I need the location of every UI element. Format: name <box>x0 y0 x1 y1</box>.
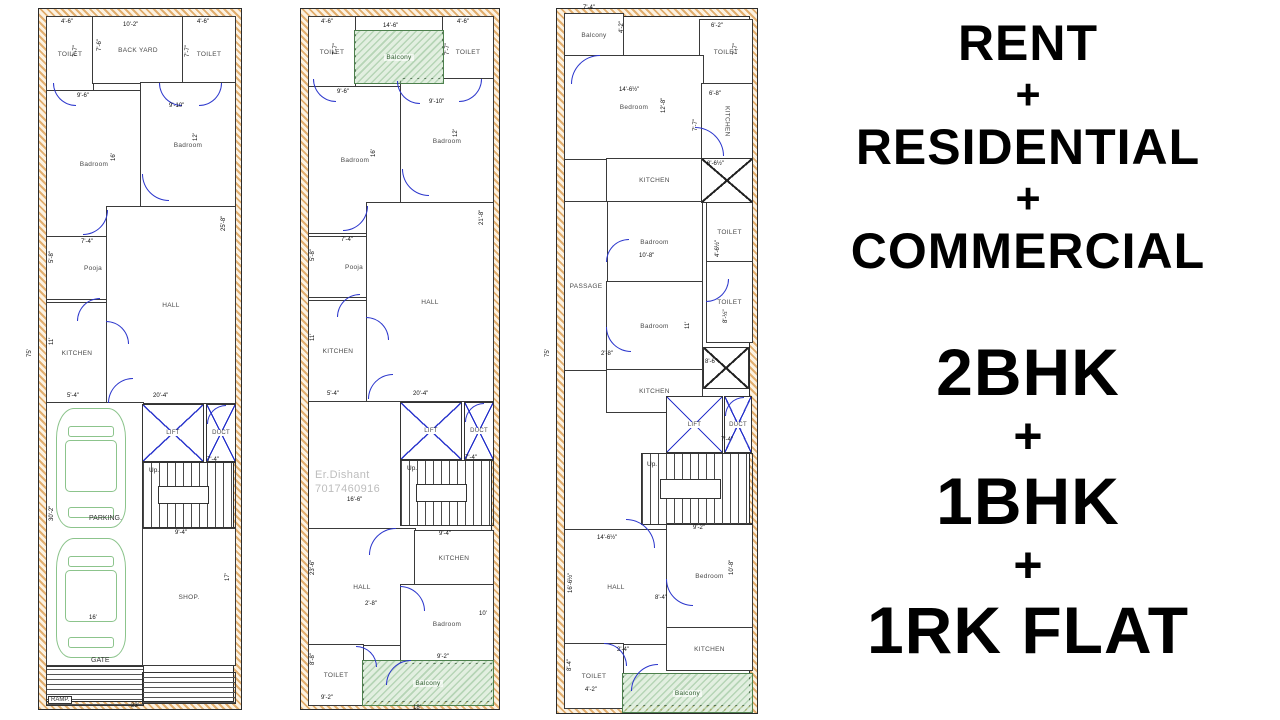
dimension-label: 16'-6" <box>347 497 362 503</box>
room-label: Badroom <box>640 323 668 330</box>
room-label: BACK YARD <box>118 47 158 54</box>
dimension-label: 4'-6½" <box>715 240 721 257</box>
dimension-label: 30'-2" <box>49 506 55 521</box>
plan-ground-floor: TOILETBACK YARDTOILETBadroomBadroomPooja… <box>38 8 242 710</box>
room-toilet: TOILET <box>706 201 753 263</box>
dimension-label: 8'-6" <box>705 359 717 365</box>
room-kitchen: KITCHEN <box>666 627 753 671</box>
room-label: TOILET <box>197 51 221 58</box>
dimension-label: 6'-2" <box>711 23 723 29</box>
dimension-label: 14'-6½" <box>619 87 639 93</box>
plan-text: Up. <box>647 461 657 468</box>
dimension-label: 11' <box>310 334 316 341</box>
room-label: Bedroom <box>695 573 723 580</box>
room-label: Badroom <box>174 142 202 149</box>
dimension-label: 8'-8" <box>310 653 316 665</box>
dimension-label: 7'-7" <box>445 43 451 55</box>
dimension-label: 20'-4" <box>153 393 168 399</box>
room-label: Badroom <box>640 239 668 246</box>
parked-car <box>56 538 126 658</box>
plan-text: PARKING. <box>89 515 122 522</box>
room-label: HALL <box>353 584 370 591</box>
plus-sign: + <box>778 537 1278 594</box>
ramp-label: RAMP. <box>48 696 72 704</box>
dimension-label: 16' <box>89 615 97 621</box>
room-label: DUCT <box>728 422 748 428</box>
dimension-label: 9'-2" <box>321 695 333 701</box>
dimension-label: 7'-7" <box>693 119 699 131</box>
balcony: Balcony <box>354 30 444 84</box>
room-shop-: SHOP. <box>142 528 236 666</box>
room-label: KITCHEN <box>323 348 354 355</box>
parked-car <box>56 408 126 528</box>
room-label: HALL <box>607 584 624 591</box>
room-label: Badroom <box>341 157 369 164</box>
room-label: KITCHEN <box>639 177 670 184</box>
dimension-label: 9'-10" <box>429 99 444 105</box>
dimension-label: 7'-4" <box>465 455 477 461</box>
headline-bottom: 2BHK+1BHK+1RK FLAT <box>778 336 1278 666</box>
dimension-label: 7'-7" <box>73 45 79 57</box>
headline-word: RENT <box>778 16 1278 71</box>
dimension-label: 14'-6" <box>383 23 398 29</box>
room-label: Pooja <box>84 265 102 272</box>
dimension-label: 9'-6" <box>77 93 89 99</box>
lift-box: LIFT <box>666 396 723 453</box>
headline-word: 2BHK <box>778 336 1278 408</box>
ramp: RAMP. <box>46 666 144 706</box>
dimension-label: 12' <box>453 129 459 137</box>
room-label: HALL <box>162 302 179 309</box>
dimension-label: 14'-6½" <box>597 535 617 541</box>
room-label: KITCHEN <box>694 646 725 653</box>
dimension-label: 4'-6" <box>197 19 209 25</box>
entry-steps <box>142 672 236 704</box>
dimension-label: 9'-6" <box>337 89 349 95</box>
dimension-label: 8'-6½" <box>707 161 724 167</box>
room-label: SHOP. <box>179 594 200 601</box>
dimension-label: 7'-4" <box>81 239 93 245</box>
dimension-label: 21'-8" <box>479 210 485 225</box>
dimension-label: 10'-8" <box>639 253 654 259</box>
dimension-label: 4'-6" <box>321 19 333 25</box>
room-toilet: TOILET <box>699 19 753 85</box>
room-label: KITCHEN <box>62 350 93 357</box>
room-label: Badroom <box>433 138 461 145</box>
plan-first-floor: TOILETTOILETBadroomBadroomPoojaKITCHENHA… <box>300 8 500 710</box>
room-label: Bedroom <box>620 104 648 111</box>
room-label: TOILET <box>582 673 606 680</box>
dimension-label: 5'-4" <box>67 393 79 399</box>
staircase <box>641 453 753 525</box>
dimension-label: 9'-4" <box>439 531 451 537</box>
plan-text: Up. <box>149 467 159 474</box>
room-bedroom: Bedroom <box>666 523 753 629</box>
room-label: PASSAGE <box>570 283 603 290</box>
dimension-label: 18' <box>413 705 421 711</box>
room-toilet: TOILET <box>308 16 356 88</box>
dimension-label: 7'-4" <box>207 457 219 463</box>
plan-second-floor: BalconyTOILETBedroomKITCHENKITCHENBadroo… <box>556 8 758 714</box>
balcony: Balcony <box>362 660 494 706</box>
room-label: TOILET <box>456 49 480 56</box>
room-label: KITCHEN <box>724 106 731 137</box>
room-label: KITCHEN <box>639 388 670 395</box>
room-hall: HALL <box>106 206 236 404</box>
headline-word: COMMERCIAL <box>778 224 1278 279</box>
dimension-label: 6'-8" <box>709 91 721 97</box>
dimension-label: 9'-2" <box>437 654 449 660</box>
shaft-box <box>703 347 749 389</box>
dimension-label: 75' <box>545 349 551 357</box>
room-label: Balcony <box>413 680 442 687</box>
plus-sign: + <box>778 71 1278 120</box>
headline-word: RESIDENTIAL <box>778 120 1278 175</box>
dimension-label: 10' <box>479 611 487 617</box>
room-label: Badroom <box>80 161 108 168</box>
headline-word: 1BHK <box>778 465 1278 537</box>
dimension-label: 4'-2" <box>585 687 597 693</box>
room-toilet: TOILET <box>46 16 94 92</box>
dimension-label: 2'-8" <box>365 601 377 607</box>
room-toilet: TOILET <box>706 261 753 343</box>
dimension-label: 75' <box>27 349 33 357</box>
dimension-label: 2'-8" <box>601 351 613 357</box>
room-label: KITCHEN <box>439 555 470 562</box>
lift-box: LIFT <box>142 404 204 462</box>
dimension-label: 16' <box>111 153 117 161</box>
room-label: DUCT <box>211 430 231 436</box>
room-label: TOILET <box>717 299 741 306</box>
dimension-label: 8'-½" <box>723 309 729 323</box>
room-label: LIFT <box>423 428 439 434</box>
dimension-label: 25'-8" <box>221 216 227 231</box>
dimension-label: 8'-4" <box>567 659 573 671</box>
dimension-label: 7'-4" <box>583 5 595 11</box>
dimension-label: 7'-6" <box>97 39 103 51</box>
plan-text: GATE <box>91 657 110 664</box>
dimension-label: 20'-4" <box>413 391 428 397</box>
room-label: HALL <box>421 299 438 306</box>
thumbnail-canvas: TOILETBACK YARDTOILETBadroomBadroomPooja… <box>0 0 1280 720</box>
dimension-label: 9'-2" <box>693 525 705 531</box>
dimension-label: 5'-4" <box>327 391 339 397</box>
dimension-label: 16'-6½" <box>568 573 574 593</box>
dimension-label: 23'-6" <box>310 560 316 575</box>
lift-box: LIFT <box>400 402 462 460</box>
room-label: Balcony <box>384 54 413 61</box>
dimension-label: 4'-2" <box>619 21 625 33</box>
room-label: LIFT <box>165 430 181 436</box>
room-label: TOILET <box>320 49 344 56</box>
dimension-label: 7'-7" <box>333 43 339 55</box>
dimension-label: 16' <box>371 149 377 157</box>
room-passage: PASSAGE <box>564 201 608 371</box>
dimension-label: 7'-4" <box>341 237 353 243</box>
dimension-label: 10'-8" <box>729 560 735 575</box>
dimension-label: 11' <box>49 338 55 345</box>
room-kitchen: KITCHEN <box>414 530 494 586</box>
dimension-label: 12'-8" <box>661 98 667 113</box>
room-label: TOILET <box>717 229 741 236</box>
room-hall: HALL <box>366 202 494 402</box>
room-label: DUCT <box>469 428 489 434</box>
watermark-text: Er.Dishant <box>315 469 370 481</box>
headline-top: RENT+RESIDENTIAL+COMMERCIAL <box>778 16 1278 279</box>
dimension-label: 7'-4" <box>721 437 733 443</box>
dimension-label: 5'-8" <box>49 251 55 263</box>
dimension-label: 12' <box>193 133 199 141</box>
dimension-label: 23' <box>131 703 139 709</box>
dimension-label: 2'-4" <box>617 647 629 653</box>
plus-sign: + <box>778 175 1278 224</box>
dimension-label: 7'-7" <box>185 45 191 57</box>
headline-word: 1RK FLAT <box>778 594 1278 666</box>
dimension-label: 11' <box>685 322 691 329</box>
dimension-label: 17' <box>225 573 231 581</box>
room-balcony: Balcony <box>564 13 624 57</box>
room-label: Badroom <box>433 621 461 628</box>
dimension-label: 4'-6" <box>457 19 469 25</box>
room-label: Balcony <box>581 32 606 39</box>
dimension-label: 9'-10" <box>169 103 184 109</box>
dimension-label: 4'-6" <box>61 19 73 25</box>
dimension-label: 8'-4" <box>655 595 667 601</box>
room-kitchen: KITCHEN <box>606 158 703 203</box>
dimension-label: 7'-7" <box>733 43 739 55</box>
room-label: Pooja <box>345 264 363 271</box>
dimension-label: 10'-2" <box>123 22 138 28</box>
room-label: LIFT <box>687 422 703 428</box>
dimension-label: 9'-4" <box>175 530 187 536</box>
dimension-label: 5'-8" <box>310 249 316 261</box>
room-label: Balcony <box>673 690 702 697</box>
plus-sign: + <box>778 408 1278 465</box>
plan-text: Up. <box>407 465 417 472</box>
room-label: TOILET <box>324 672 348 679</box>
watermark-text: 7017460916 <box>315 483 380 495</box>
